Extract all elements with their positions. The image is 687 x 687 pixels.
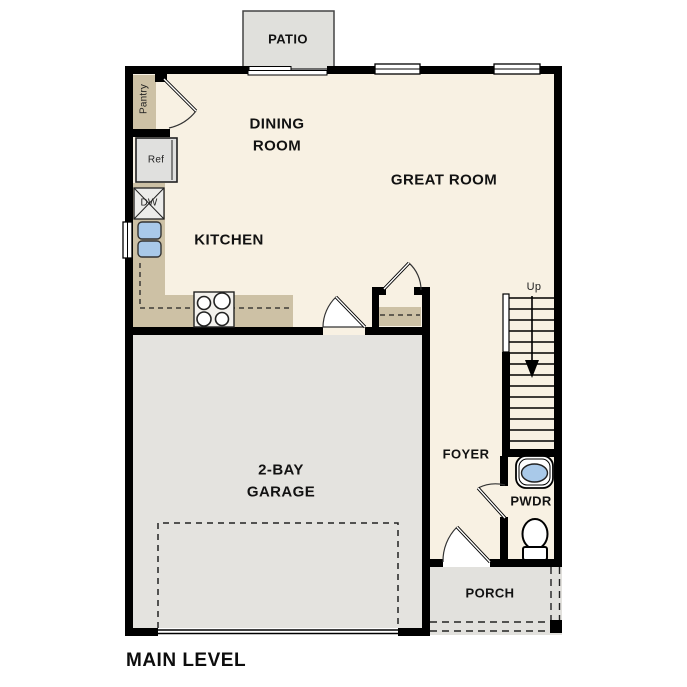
porch-label: PORCH [466, 586, 515, 601]
stairs-up-label: Up [527, 281, 542, 293]
wall-bottom-left [125, 628, 158, 636]
wall-pwdr-left-upper [500, 456, 508, 486]
stove-burner-1 [198, 297, 211, 310]
garage-label-line1: 2-BAY [258, 462, 304, 479]
great-room-label: GREAT ROOM [391, 172, 497, 189]
garage-label-line2: GARAGE [247, 484, 315, 501]
wall-porch-top-left [422, 559, 443, 567]
stair-railing [503, 294, 509, 352]
porch-post [550, 620, 562, 633]
wall-top-left [125, 66, 250, 74]
wall-garage-right [422, 287, 430, 636]
wall-left [125, 66, 133, 636]
floor-plan-drawing [0, 0, 687, 687]
stove-burner-2 [214, 293, 230, 309]
patio-slider-panel-2 [248, 71, 327, 76]
foyer-label: FOYER [443, 447, 490, 462]
dishwasher-label: DW [140, 198, 157, 209]
dining-room-label-line1: DINING [250, 116, 305, 133]
sink-basin-1 [138, 222, 161, 239]
patio-label: PATIO [268, 32, 308, 47]
closet-shelf [379, 307, 421, 326]
vanity-sink-basin [522, 464, 548, 482]
stove-burner-3 [197, 312, 211, 326]
refrigerator-label: Ref [148, 155, 164, 166]
pantry-label: Pantry [139, 84, 150, 114]
wall-stairs-left [502, 352, 510, 456]
wall-kitchen-garage [125, 327, 323, 335]
porch-slab [430, 567, 562, 635]
garage-overhead-door [158, 628, 398, 636]
wall-pantry-bottom [129, 129, 170, 137]
pwdr-label: PWDR [510, 494, 551, 509]
floor-plan: PATIO Pantry DINING ROOM GREAT ROOM Ref … [0, 0, 687, 687]
wall-pwdr-left-lower [500, 517, 508, 563]
sink-basin-2 [138, 241, 161, 257]
toilet-tank [523, 547, 547, 560]
garage-floor [133, 335, 422, 628]
toilet-bowl [523, 519, 548, 549]
dining-room-label-line2: ROOM [253, 138, 301, 155]
wall-right [554, 66, 562, 567]
kitchen-label: KITCHEN [194, 232, 263, 249]
plan-title: MAIN LEVEL [126, 650, 246, 672]
stove-burner-4 [216, 313, 229, 326]
